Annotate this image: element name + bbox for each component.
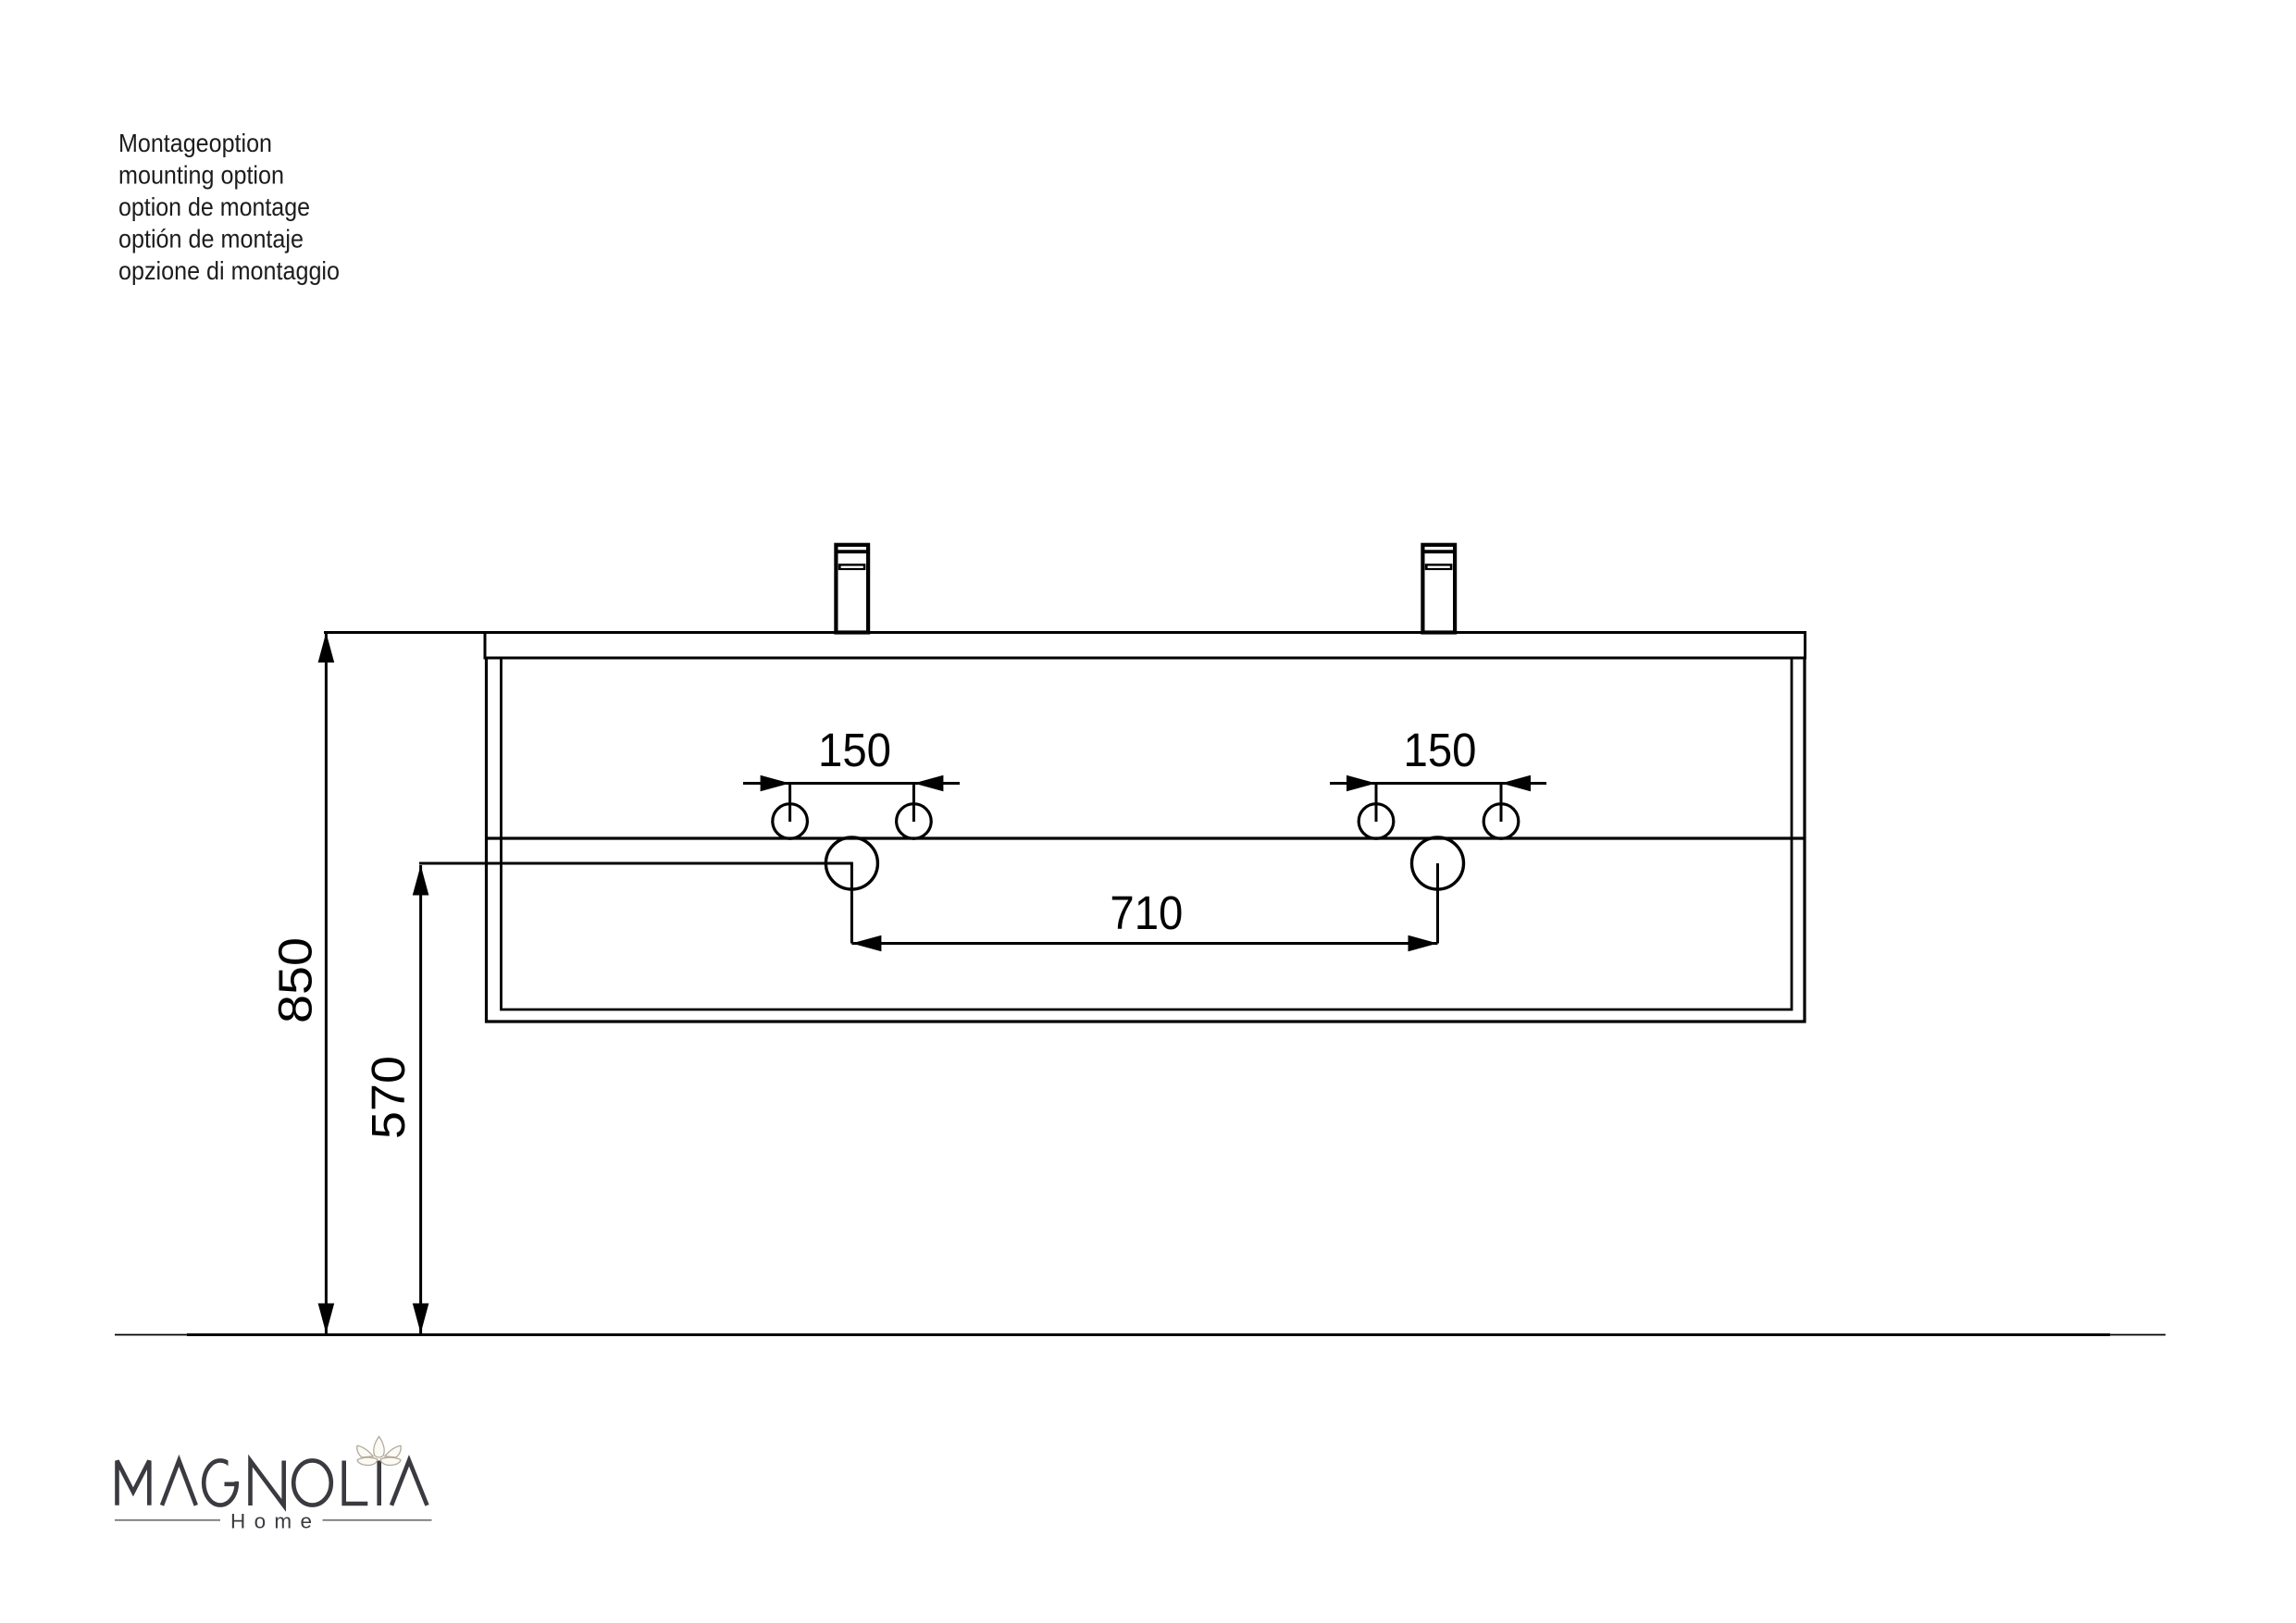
svg-text:option de montage: option de montage <box>118 192 310 221</box>
svg-text:150: 150 <box>1404 724 1477 776</box>
svg-text:150: 150 <box>818 724 891 776</box>
svg-text:optión de montaje: optión de montaje <box>118 225 304 254</box>
svg-text:710: 710 <box>1110 886 1183 939</box>
svg-text:850: 850 <box>269 937 322 1023</box>
svg-text:opzione di montaggio: opzione di montaggio <box>118 256 340 285</box>
svg-text:570: 570 <box>362 1056 415 1139</box>
svg-text:mounting option: mounting option <box>118 161 284 190</box>
svg-text:Montageoption: Montageoption <box>118 129 272 157</box>
